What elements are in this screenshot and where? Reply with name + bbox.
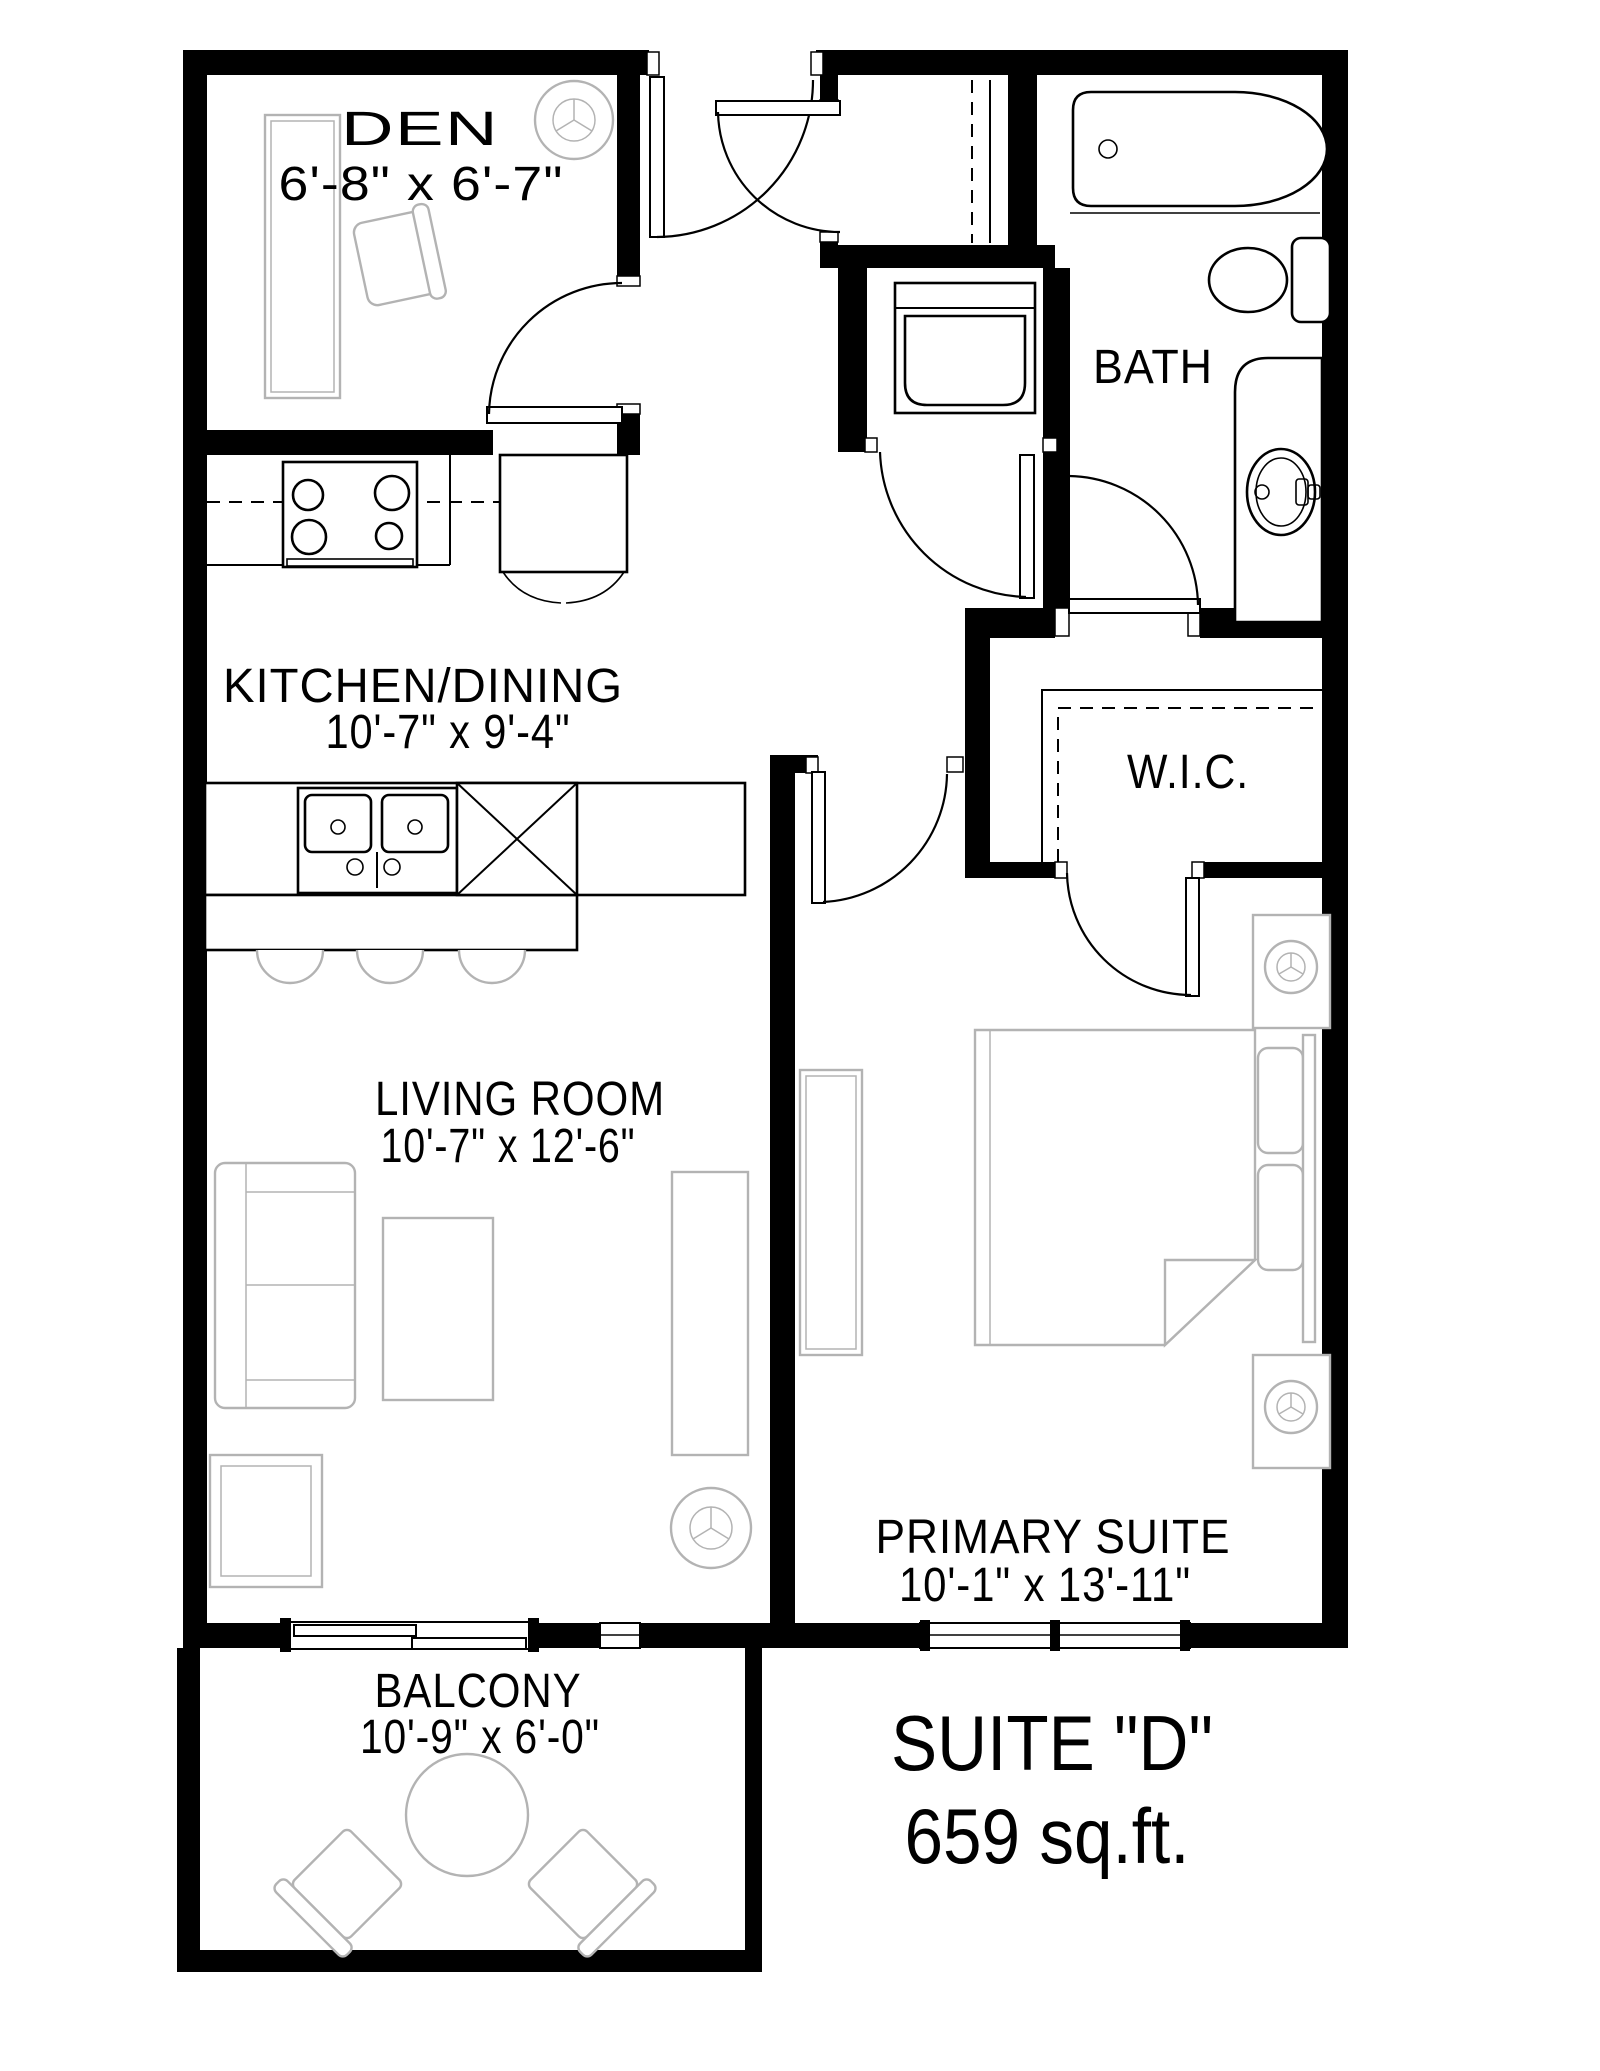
bath-label: BATH <box>1093 341 1213 394</box>
window-mullion-1 <box>920 1620 930 1651</box>
wall-den-right <box>617 50 640 285</box>
den-door-leaf <box>487 407 622 423</box>
ceiling-fan-icon <box>671 1488 751 1568</box>
headboard <box>1303 1035 1315 1342</box>
living-room-furniture <box>210 1163 751 1587</box>
entry-jamb-right <box>811 52 823 75</box>
coffee-table <box>383 1218 493 1400</box>
patio-slider-jamb-left <box>280 1618 291 1652</box>
wall-wic-bottom-right <box>1204 862 1322 878</box>
blanket-fold <box>1165 1260 1255 1345</box>
toilet-icon <box>1209 238 1330 322</box>
island <box>205 783 745 950</box>
closet-jamb-bottom <box>820 232 838 242</box>
bar-stools <box>257 950 525 983</box>
patio-table <box>406 1754 528 1876</box>
primary-suite-dims: 10'-1" x 13'-11" <box>899 1559 1191 1612</box>
bedroom-door-leaf <box>812 772 825 903</box>
floorplan-suite-d: DEN 6'-8" x 6'-7" BATH KITCHEN/DINING 10… <box>0 0 1600 2071</box>
entry-jamb-left <box>647 52 659 75</box>
suite-area: 659 sq.ft. <box>905 1792 1190 1880</box>
wall-balcony-bottom <box>177 1950 762 1972</box>
island-bar <box>205 895 577 950</box>
bedroom-jamb-right <box>947 757 963 772</box>
double-sink-icon <box>298 788 457 893</box>
wall-top-right <box>816 50 1348 75</box>
bath-door-leaf <box>1069 599 1200 613</box>
hall-door-leaf <box>1020 455 1034 598</box>
primary-furniture <box>800 915 1330 1468</box>
patio-slider-jamb-right <box>528 1618 539 1652</box>
wic-door-leaf <box>1186 878 1199 996</box>
pillow <box>1258 1048 1303 1153</box>
hall-jamb-left <box>865 438 877 452</box>
patio-chair <box>272 1820 411 1959</box>
vanity-sink-icon <box>1235 358 1322 622</box>
wic-jamb-left <box>1055 862 1067 878</box>
wic-door-swing <box>1067 873 1191 995</box>
patio-slider-panel-1 <box>294 1625 416 1636</box>
walls <box>177 50 1348 1972</box>
wall-bottom-a <box>183 1623 290 1648</box>
den-jamb-top <box>617 276 640 286</box>
wall-living-bedroom <box>770 755 795 1623</box>
wic-jamb-right <box>1192 862 1204 878</box>
window-mullion-3 <box>1180 1620 1190 1651</box>
bath-jamb-left <box>1055 608 1069 636</box>
den-door-swing <box>489 283 622 414</box>
wall-closet-bath <box>1008 75 1037 268</box>
stool-icon <box>459 950 525 983</box>
fan-lamp-icon <box>1265 1381 1317 1433</box>
kitchen-dims: 10'-7" x 9'-4" <box>326 706 571 759</box>
wall-laundry-left <box>838 268 867 452</box>
wall-left <box>183 50 207 1648</box>
fan-lamp-icon <box>1265 941 1317 993</box>
wall-bath-bottom-left <box>965 608 1055 638</box>
floorplan-page: DEN 6'-8" x 6'-7" BATH KITCHEN/DINING 10… <box>0 0 1600 2071</box>
patio-chair <box>519 1820 658 1959</box>
window-mullion-2 <box>1050 1620 1060 1651</box>
hall-jamb-right <box>1043 438 1057 452</box>
den-label: DEN <box>341 103 499 156</box>
closet-door-leaf <box>716 101 840 115</box>
stool-icon <box>357 950 423 983</box>
patio-slider-panel-2 <box>412 1638 526 1649</box>
stool-icon <box>257 950 323 983</box>
laundry <box>895 283 1035 413</box>
entry-door-leaf <box>650 77 664 237</box>
wic-label: W.I.C. <box>1127 746 1249 799</box>
balcony-dims: 10'-9" x 6'-0" <box>360 1711 600 1764</box>
wall-balcony-right <box>745 1648 762 1972</box>
washer-icon <box>905 316 1025 405</box>
dresser <box>800 1070 862 1355</box>
labels: DEN 6'-8" x 6'-7" BATH KITCHEN/DINING 10… <box>223 103 1249 1880</box>
den-dims: 6'-8" x 6'-7" <box>279 158 564 211</box>
living-room-dims: 10'-7" x 12'-6" <box>381 1120 636 1173</box>
living-room-label: LIVING ROOM <box>375 1073 665 1126</box>
desk-chair <box>351 203 447 313</box>
stove-icon <box>283 462 417 567</box>
counter-x-icon <box>457 783 577 895</box>
wall-balcony-left <box>177 1648 200 1972</box>
bedroom-jamb-left <box>806 757 818 773</box>
balcony-furniture <box>272 1754 658 1959</box>
wall-wic-bottom-left <box>965 862 1067 878</box>
ceiling-fan-icon <box>535 81 613 159</box>
fridge-icon <box>500 455 627 603</box>
pillow <box>1258 1165 1303 1270</box>
bedroom-door-swing <box>823 774 947 902</box>
wall-wic-left <box>965 638 990 862</box>
bathtub-icon <box>1070 92 1327 213</box>
wall-bottom-b <box>530 1623 920 1648</box>
hall-door-swing <box>880 452 1026 597</box>
suite-title: SUITE "D" <box>891 1699 1213 1787</box>
wall-bottom-c <box>1190 1623 1348 1648</box>
primary-suite-label: PRIMARY SUITE <box>876 1511 1231 1564</box>
sofa <box>215 1163 355 1408</box>
wall-top-left <box>183 50 649 75</box>
end-table <box>210 1455 322 1587</box>
bath-door-swing <box>1069 476 1198 605</box>
wall-den-bottom <box>183 430 493 455</box>
tv-console <box>672 1172 748 1455</box>
